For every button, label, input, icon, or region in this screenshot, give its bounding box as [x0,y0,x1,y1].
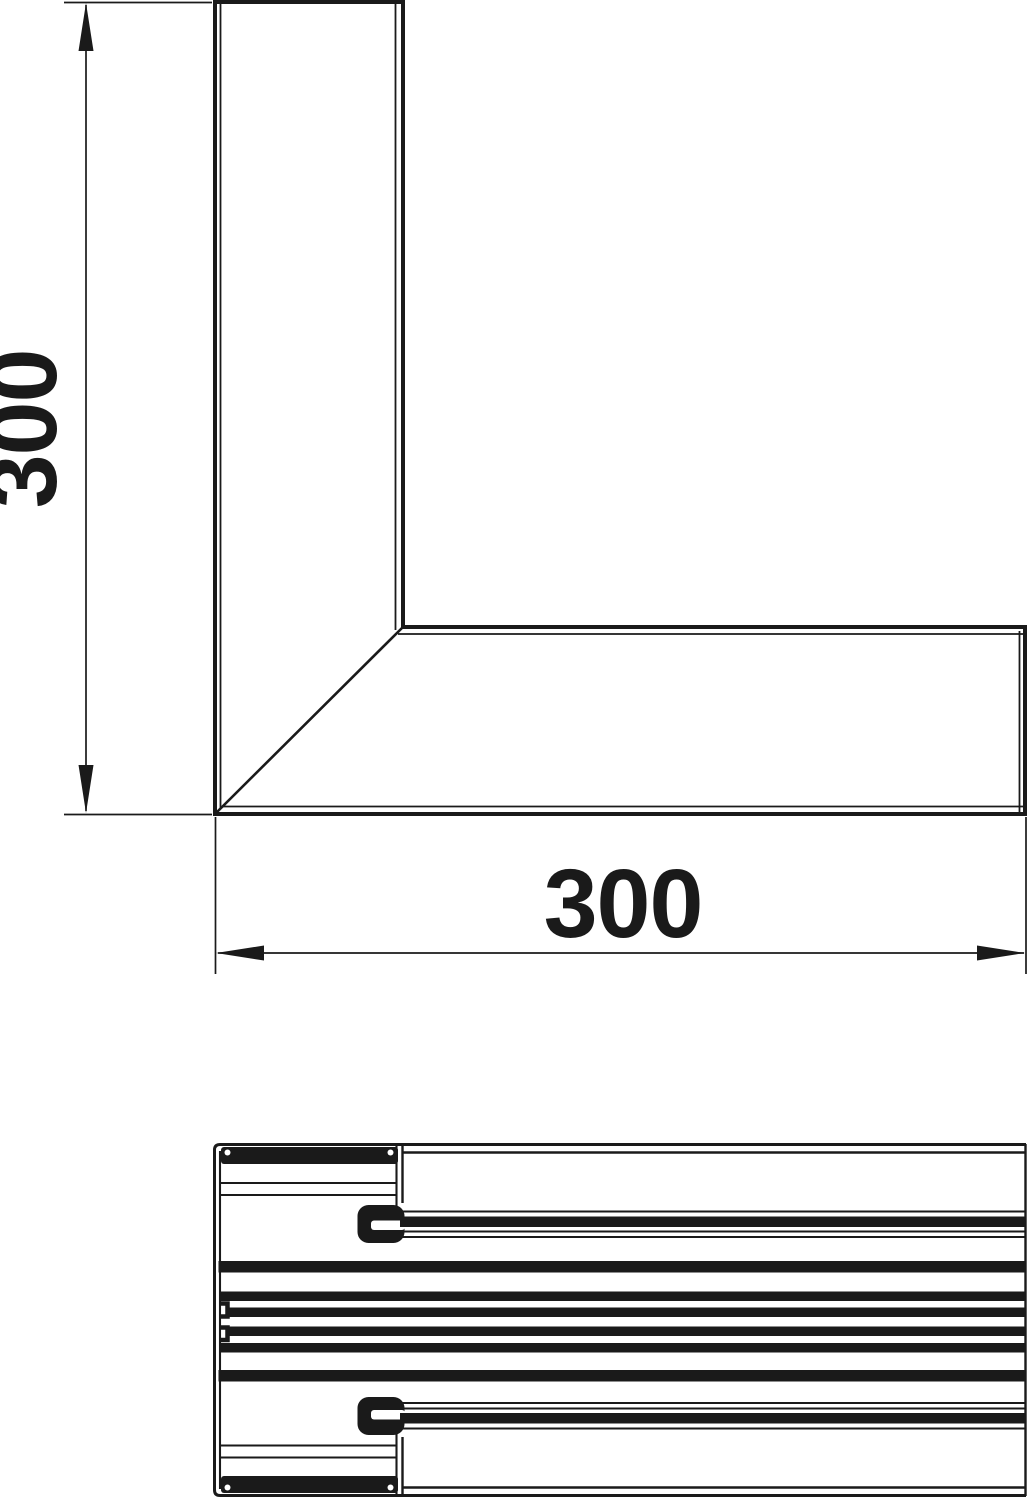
profile-lower-cover-rail [358,1397,1026,1435]
mid-rail-2 [227,1308,1025,1318]
technical-drawing-page: 300 300 [0,0,1030,1500]
mid-rail-1 [221,1292,1025,1302]
profile-upper-cover-rail [358,1205,1026,1243]
lower-endcap-bar [221,1476,398,1493]
mid-rail-4 [221,1343,1025,1353]
horizontal-dimension-label: 300 [544,849,703,958]
arrow-down-icon [79,765,94,813]
arrow-left-icon [216,946,264,961]
profile-outer-shell [215,1145,1027,1496]
plan-view [215,2,1025,814]
separator-rail-top [219,1261,1026,1273]
horizontal-dimension: 300 [216,817,1027,974]
profile-lower-endcap [220,1434,403,1495]
vertical-dimension-label: 300 [0,350,77,509]
mid-rail-3 [227,1327,1025,1337]
arrow-up-icon [79,3,94,51]
profile-upper-endcap [220,1145,403,1206]
arrow-right-icon [977,946,1025,961]
upper-endcap-bar [221,1147,398,1164]
separator-rail-bottom [219,1370,1026,1382]
profile-view [215,1144,1027,1496]
profile-middle-rails [219,1261,1026,1382]
drawing-svg: 300 300 [0,0,1030,1500]
vertical-dimension: 300 [0,3,212,815]
